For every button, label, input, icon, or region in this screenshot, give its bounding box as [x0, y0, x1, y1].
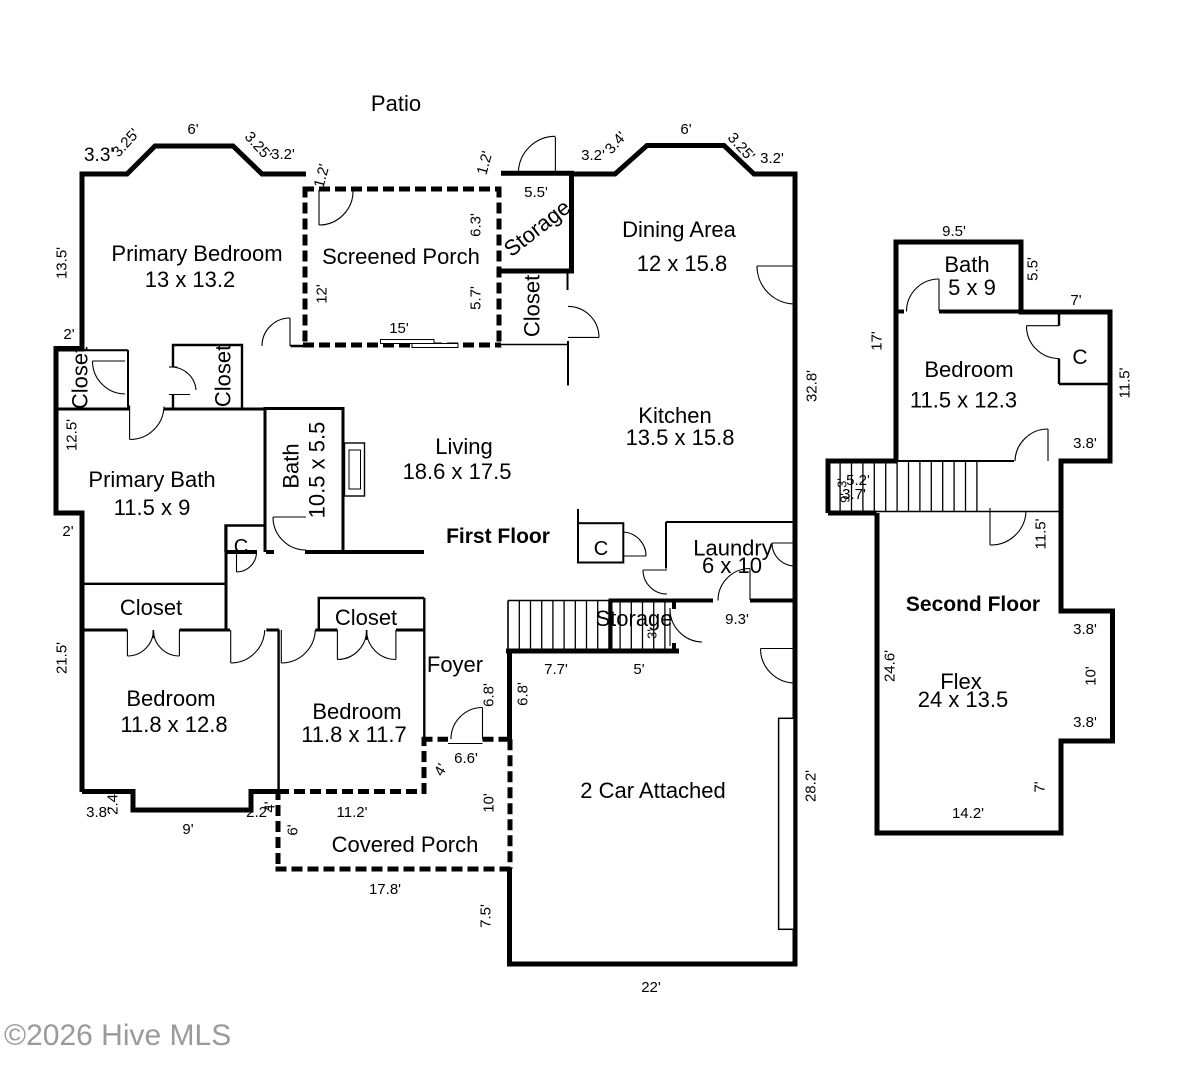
- svg-text:Dining Area: Dining Area: [622, 217, 737, 242]
- svg-text:Closet: Closet: [520, 275, 545, 337]
- svg-text:Bedroom: Bedroom: [924, 357, 1013, 382]
- svg-text:Closet: Closet: [335, 605, 397, 630]
- svg-text:14.2': 14.2': [952, 805, 984, 822]
- svg-text:6': 6': [680, 121, 691, 138]
- svg-text:6.8': 6.8': [515, 682, 532, 706]
- svg-text:6': 6': [187, 121, 198, 138]
- svg-text:10': 10': [1083, 666, 1100, 686]
- svg-text:Second Floor: Second Floor: [906, 593, 1040, 616]
- svg-text:Screened Porch: Screened Porch: [322, 244, 480, 269]
- svg-text:10': 10': [481, 793, 498, 813]
- svg-text:6.3': 6.3': [468, 213, 485, 237]
- svg-text:24 x 13.5: 24 x 13.5: [918, 687, 1009, 712]
- svg-text:3.2': 3.2': [271, 146, 295, 163]
- svg-text:5.7': 5.7': [468, 286, 485, 310]
- svg-text:Covered Porch: Covered Porch: [332, 832, 479, 857]
- svg-text:6.8': 6.8': [481, 683, 498, 707]
- svg-text:3': 3': [645, 629, 660, 639]
- svg-text:12': 12': [314, 284, 331, 304]
- svg-text:17': 17': [869, 331, 886, 351]
- svg-text:9.3': 9.3': [725, 611, 749, 628]
- svg-text:3.8': 3.8': [1073, 621, 1097, 638]
- svg-text:11.8 x 12.8: 11.8 x 12.8: [120, 712, 227, 737]
- svg-text:Bath: Bath: [279, 443, 304, 488]
- svg-text:22': 22': [641, 979, 661, 996]
- svg-text:24.6': 24.6': [882, 650, 899, 682]
- svg-text:2 Car Attached: 2 Car Attached: [580, 778, 726, 803]
- svg-text:C: C: [594, 538, 608, 560]
- svg-text:28.2': 28.2': [803, 770, 820, 802]
- svg-text:9': 9': [182, 821, 193, 838]
- svg-text:13.5': 13.5': [54, 247, 71, 279]
- svg-text:10.5 x 5.5: 10.5 x 5.5: [305, 422, 330, 519]
- svg-text:7': 7': [1032, 781, 1049, 792]
- svg-text:3.2': 3.2': [760, 150, 784, 167]
- svg-text:5': 5': [633, 661, 644, 678]
- svg-text:Living: Living: [435, 434, 492, 459]
- svg-text:12.5': 12.5': [64, 419, 81, 451]
- svg-text:Primary Bedroom: Primary Bedroom: [111, 241, 282, 266]
- svg-text:Foyer: Foyer: [427, 652, 483, 677]
- svg-text:First Floor: First Floor: [446, 525, 550, 548]
- svg-text:C: C: [1072, 346, 1087, 369]
- svg-text:6.6': 6.6': [454, 750, 478, 767]
- svg-text:2.4': 2.4': [105, 791, 122, 815]
- svg-text:Closet: Closet: [120, 595, 182, 620]
- svg-text:11.8 x 11.7: 11.8 x 11.7: [301, 722, 407, 747]
- svg-text:18.6 x 17.5: 18.6 x 17.5: [403, 459, 512, 484]
- svg-text:11.5 x 12.3: 11.5 x 12.3: [910, 388, 1017, 413]
- svg-text:6': 6': [285, 824, 302, 835]
- svg-text:3': 3': [835, 478, 850, 488]
- svg-text:21.5': 21.5': [54, 642, 71, 674]
- svg-text:Primary Bath: Primary Bath: [88, 467, 215, 492]
- svg-text:7.7': 7.7': [544, 661, 568, 678]
- svg-text:11.5': 11.5': [1033, 518, 1050, 549]
- svg-text:3.8': 3.8': [1073, 435, 1097, 452]
- svg-text:Closet: Closet: [211, 345, 236, 407]
- svg-text:3.8': 3.8': [1073, 714, 1097, 731]
- svg-text:11.5': 11.5': [1117, 367, 1134, 398]
- svg-text:13.5 x 15.8: 13.5 x 15.8: [626, 425, 735, 450]
- svg-text:Closet: Closet: [68, 347, 93, 409]
- svg-text:15': 15': [389, 320, 409, 337]
- svg-text:3.2': 3.2': [581, 147, 605, 164]
- svg-text:9.5': 9.5': [942, 223, 966, 240]
- svg-text:11.2': 11.2': [337, 804, 368, 821]
- svg-text:2': 2': [63, 326, 74, 343]
- svg-text:17.8': 17.8': [369, 881, 401, 898]
- svg-text:C: C: [234, 536, 248, 558]
- svg-text:13 x 13.2: 13 x 13.2: [145, 267, 236, 292]
- svg-text:12 x 15.8: 12 x 15.8: [637, 251, 728, 276]
- svg-text:Patio: Patio: [371, 91, 421, 116]
- svg-text:9': 9': [838, 493, 853, 503]
- svg-text:11.5 x 9: 11.5 x 9: [114, 495, 191, 520]
- svg-text:32.8': 32.8': [804, 370, 821, 402]
- svg-text:©2026 Hive MLS: ©2026 Hive MLS: [4, 1019, 231, 1052]
- svg-text:Bedroom: Bedroom: [126, 686, 215, 711]
- svg-text:2': 2': [62, 523, 73, 540]
- svg-text:5.5': 5.5': [1025, 257, 1042, 281]
- svg-text:Storage: Storage: [595, 606, 672, 631]
- svg-text:Bedroom: Bedroom: [312, 699, 401, 724]
- svg-text:7': 7': [1070, 292, 1081, 309]
- svg-text:Bath: Bath: [944, 252, 989, 277]
- svg-text:7.5': 7.5': [478, 904, 495, 928]
- svg-text:5 x 9: 5 x 9: [948, 275, 996, 300]
- svg-text:5.5': 5.5': [524, 184, 548, 201]
